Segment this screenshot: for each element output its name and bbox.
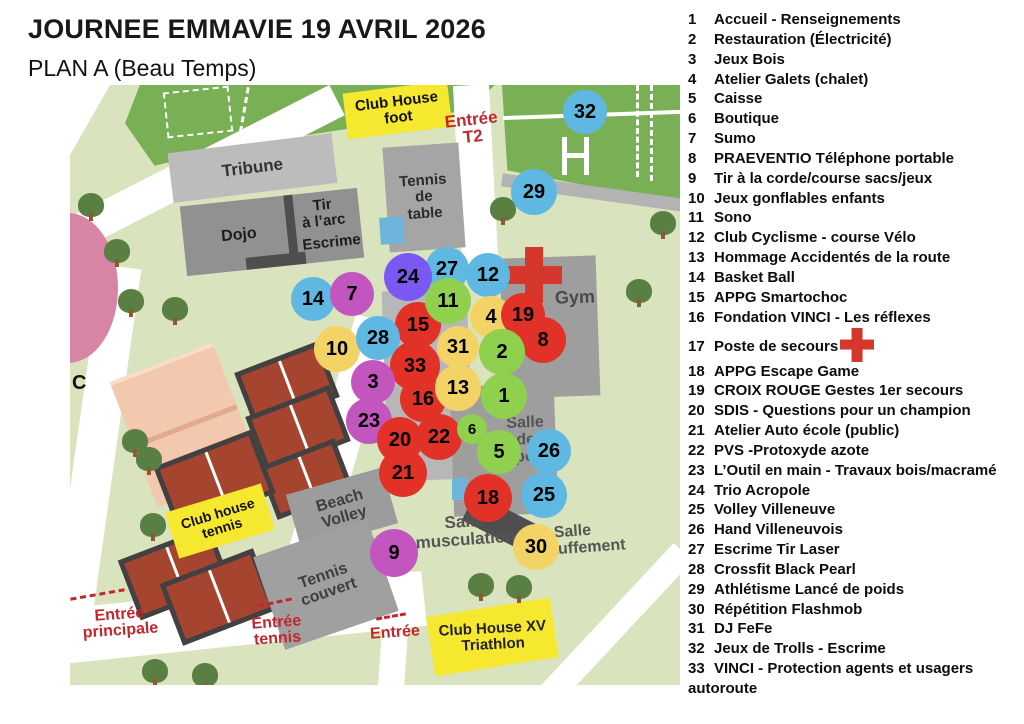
legend-item-16: 16Fondation VINCI - Les réflexes — [688, 308, 1022, 328]
legend-item-number: 9 — [688, 169, 714, 189]
legend-item-28: 28Crossfit Black Pearl — [688, 560, 1022, 580]
legend-item-label: Poste de secours — [714, 338, 838, 355]
legend-item-15: 15APPG Smartochoc — [688, 288, 1022, 308]
legend-item-number: 7 — [688, 129, 714, 149]
map-marker-18: 18 — [464, 474, 512, 522]
legend-item-label: Volley Villeneuve — [714, 501, 835, 518]
legend-item-label: Club Cyclisme - course Vélo — [714, 229, 916, 246]
event-plan-page: JOURNEE EMMAVIE 19 AVRIL 2026 PLAN A (Be… — [0, 0, 1024, 724]
legend-item-number: 13 — [688, 248, 714, 268]
legend-item-number: 16 — [688, 308, 714, 328]
legend-item-number: 11 — [688, 208, 714, 228]
legend-item-label: Accueil - Renseignements — [714, 11, 901, 28]
first-aid-cross-icon — [840, 328, 874, 362]
legend-item-1: 1Accueil - Renseignements — [688, 10, 1022, 30]
legend-item-6: 6Boutique — [688, 109, 1022, 129]
legend-item-number: 24 — [688, 481, 714, 501]
legend-item-number: 28 — [688, 560, 714, 580]
map-marker-12: 12 — [466, 253, 510, 297]
legend-item-29: 29Athlétisme Lancé de poids — [688, 580, 1022, 600]
legend-item-33: 33VINCI - Protection agents et usagers a… — [688, 659, 1022, 699]
legend-item-label: Escrime Tir Laser — [714, 541, 840, 558]
legend-item-5: 5Caisse — [688, 89, 1022, 109]
legend-item-32: 32Jeux de Trolls - Escrime — [688, 639, 1022, 659]
legend-item-13: 13Hommage Accidentés de la route — [688, 248, 1022, 268]
legend-item-label: Hand Villeneuvois — [714, 521, 843, 538]
legend-item-25: 25Volley Villeneuve — [688, 500, 1022, 520]
legend-item-7: 7Sumo — [688, 129, 1022, 149]
legend-item-label: Fondation VINCI - Les réflexes — [714, 309, 931, 326]
legend-item-label: APPG Escape Game — [714, 363, 859, 380]
legend-item-label: Atelier Auto école (public) — [714, 422, 899, 439]
page-title: JOURNEE EMMAVIE 19 AVRIL 2026 — [28, 14, 486, 45]
legend-item-19: 19CROIX ROUGE Gestes 1er secours — [688, 381, 1022, 401]
legend-item-label: Basket Ball — [714, 269, 795, 286]
legend-item-24: 24Trio Acropole — [688, 481, 1022, 501]
map-marker-14: 14 — [291, 277, 335, 321]
legend-item-label: DJ FeFe — [714, 620, 772, 637]
legend-item-label: Crossfit Black Pearl — [714, 561, 856, 578]
legend-item-number: 10 — [688, 189, 714, 209]
legend-item-17: 17Poste de secours — [688, 328, 1022, 362]
map-marker-2: 2 — [479, 329, 525, 375]
legend-item-number: 26 — [688, 520, 714, 540]
legend-list: 1Accueil - Renseignements2Restauration (… — [688, 10, 1022, 699]
legend-item-number: 21 — [688, 421, 714, 441]
legend-item-number: 12 — [688, 228, 714, 248]
legend-item-4: 4Atelier Galets (chalet) — [688, 70, 1022, 90]
legend-item-number: 33 — [688, 659, 714, 679]
legend-item-31: 31DJ FeFe — [688, 619, 1022, 639]
legend-item-number: 15 — [688, 288, 714, 308]
legend-item-10: 10Jeux gonflables enfants — [688, 189, 1022, 209]
legend-item-14: 14Basket Ball — [688, 268, 1022, 288]
legend-item-11: 11Sono — [688, 208, 1022, 228]
legend-item-label: Sono — [714, 209, 752, 226]
legend-item-label: CROIX ROUGE Gestes 1er secours — [714, 382, 963, 399]
legend-item-label: Jeux gonflables enfants — [714, 190, 885, 207]
legend-item-number: 2 — [688, 30, 714, 50]
map-marker-10: 10 — [314, 326, 360, 372]
legend-item-number: 3 — [688, 50, 714, 70]
legend-item-label: Jeux Bois — [714, 51, 785, 68]
legend-item-label: Trio Acropole — [714, 482, 810, 499]
map-marker-1: 1 — [481, 373, 527, 419]
legend-item-number: 19 — [688, 381, 714, 401]
legend-item-label: Athlétisme Lancé de poids — [714, 581, 904, 598]
legend-item-20: 20SDIS - Questions pour un champion — [688, 401, 1022, 421]
legend-item-number: 30 — [688, 600, 714, 620]
legend-item-30: 30Répétition Flashmob — [688, 600, 1022, 620]
legend-item-label: PVS -Protoxyde azote — [714, 442, 869, 459]
map-marker-21: 21 — [379, 449, 427, 497]
map-marker-5: 5 — [477, 430, 521, 474]
legend-item-label: APPG Smartochoc — [714, 289, 847, 306]
legend-item-number: 27 — [688, 540, 714, 560]
map-marker-13: 13 — [435, 365, 481, 411]
legend-item-label: Boutique — [714, 110, 779, 127]
legend-item-label: Caisse — [714, 90, 762, 107]
legend-item-label: Répétition Flashmob — [714, 601, 862, 618]
legend-item-number: 23 — [688, 461, 714, 481]
legend-item-number: 32 — [688, 639, 714, 659]
legend-item-label: Jeux de Trolls - Escrime — [714, 640, 886, 657]
markers-layer: 3229147272412151148191028312333161312320… — [70, 85, 680, 685]
legend-item-label: Tir à la corde/course sacs/jeux — [714, 170, 932, 187]
map-marker-26: 26 — [527, 429, 571, 473]
legend-item-number: 29 — [688, 580, 714, 600]
map-marker-32: 32 — [563, 90, 607, 134]
legend-item-label: PRAEVENTIO Téléphone portable — [714, 150, 954, 167]
legend-item-9: 9Tir à la corde/course sacs/jeux — [688, 169, 1022, 189]
legend-item-18: 18APPG Escape Game — [688, 362, 1022, 382]
legend-item-label: Atelier Galets (chalet) — [714, 71, 868, 88]
map-marker-30: 30 — [513, 524, 559, 570]
legend-item-number: 31 — [688, 619, 714, 639]
map-marker-22: 22 — [416, 414, 462, 460]
legend-item-number: 20 — [688, 401, 714, 421]
legend-item-number: 22 — [688, 441, 714, 461]
legend-item-number: 1 — [688, 10, 714, 30]
legend-item-22: 22PVS -Protoxyde azote — [688, 441, 1022, 461]
map-marker-7: 7 — [330, 272, 374, 316]
legend-item-21: 21Atelier Auto école (public) — [688, 421, 1022, 441]
legend-item-label: VINCI - Protection agents et usagers aut… — [688, 660, 973, 697]
map-marker-25: 25 — [521, 472, 567, 518]
legend-item-number: 25 — [688, 500, 714, 520]
plan-subtitle: PLAN A (Beau Temps) — [28, 55, 256, 82]
legend-item-number: 5 — [688, 89, 714, 109]
site-map: C Tribune Club House foot Entrée T2 Tenn… — [70, 85, 680, 685]
legend-item-number: 6 — [688, 109, 714, 129]
legend-item-label: L’Outil en main - Travaux bois/macramé — [714, 462, 997, 479]
legend-item-23: 23L’Outil en main - Travaux bois/macramé — [688, 461, 1022, 481]
legend-item-label: Sumo — [714, 130, 756, 147]
legend-item-number: 18 — [688, 362, 714, 382]
legend-item-number: 14 — [688, 268, 714, 288]
legend-item-26: 26Hand Villeneuvois — [688, 520, 1022, 540]
legend-item-number: 4 — [688, 70, 714, 90]
legend-item-12: 12Club Cyclisme - course Vélo — [688, 228, 1022, 248]
legend-item-3: 3Jeux Bois — [688, 50, 1022, 70]
map-marker-9: 9 — [370, 529, 418, 577]
map-marker-31: 31 — [437, 326, 479, 368]
legend-item-label: Hommage Accidentés de la route — [714, 249, 950, 266]
legend-item-label: SDIS - Questions pour un champion — [714, 402, 971, 419]
map-marker-24: 24 — [384, 253, 432, 301]
legend-item-2: 2Restauration (Électricité) — [688, 30, 1022, 50]
legend-item-number: 8 — [688, 149, 714, 169]
legend-item-8: 8PRAEVENTIO Téléphone portable — [688, 149, 1022, 169]
map-marker-11: 11 — [425, 278, 471, 324]
map-marker-29: 29 — [511, 169, 557, 215]
legend-item-27: 27Escrime Tir Laser — [688, 540, 1022, 560]
legend-item-label: Restauration (Électricité) — [714, 31, 892, 48]
legend-item-number: 17 — [688, 337, 714, 357]
